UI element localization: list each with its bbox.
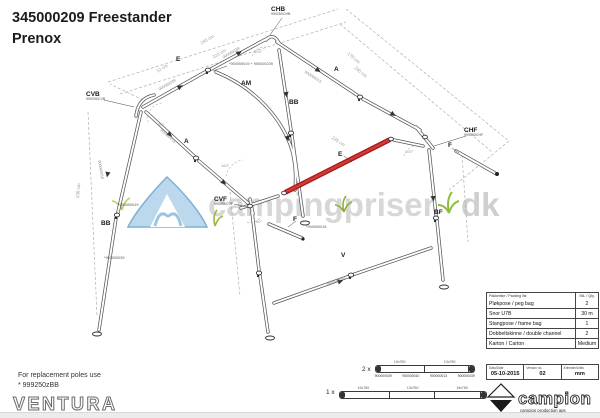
packing-table-row: Dobbeltskinne / double channel2 bbox=[487, 328, 598, 338]
campion-diamond-top bbox=[488, 384, 514, 397]
title-line-2: Prenox bbox=[12, 29, 172, 50]
packing-item-label: Snor U7B bbox=[487, 309, 575, 318]
spare-part-number: 900000039 bbox=[375, 374, 392, 378]
meta-cell: Enheder/Unitsmm bbox=[561, 365, 598, 379]
packing-table-row: Stangpose / frame bag1 bbox=[487, 318, 598, 328]
meta-cell: Version no.02 bbox=[523, 365, 560, 379]
packing-item-qty: 2 bbox=[575, 299, 598, 308]
assembly-arrows bbox=[104, 49, 436, 284]
ventura-logo-text: VENTURA bbox=[13, 394, 118, 414]
frame-diagram: campingpriser dk bbox=[0, 0, 600, 418]
note-line-1: For replacement poles use bbox=[18, 371, 101, 381]
meta-value: mm bbox=[575, 371, 585, 377]
spare-pole-row: 2 x19x75013x7509000000399000000109000000… bbox=[362, 360, 475, 378]
campion-logo-text: campion bbox=[518, 389, 591, 408]
spare-count: 1 x bbox=[326, 389, 335, 396]
watermark-text-1: campingpriser bbox=[208, 186, 436, 223]
spare-part-number: 900000010 bbox=[402, 374, 419, 378]
tent-icon bbox=[128, 177, 207, 227]
packing-item-qty: Medium bbox=[575, 339, 598, 348]
packing-meta-strip: Dato/Date05-10-2015Version no.02Enheder/… bbox=[486, 364, 599, 380]
meta-label: Enheder/Units bbox=[562, 366, 584, 370]
watermark-text-2: dk bbox=[461, 186, 500, 223]
packing-table-row: Snor U7B30 m bbox=[487, 308, 598, 318]
packing-item-qty: 30 m bbox=[575, 309, 598, 318]
spare-part-number: 900000039 bbox=[458, 374, 475, 378]
meta-cell: Dato/Date05-10-2015 bbox=[487, 365, 523, 379]
replacement-note: For replacement poles use * 999250zBB bbox=[18, 371, 101, 391]
feet bbox=[93, 221, 449, 340]
packing-list-table: Pakkeliste / Packing list Stk. / Qty. Pl… bbox=[486, 292, 599, 349]
red-pole bbox=[286, 140, 389, 192]
meta-value: 05-10-2015 bbox=[491, 371, 520, 377]
packing-item-label: Pløkpose / peg bag bbox=[487, 299, 575, 308]
sprout-icon bbox=[438, 192, 459, 213]
packing-item-label: Stangpose / frame bag bbox=[487, 319, 575, 328]
meta-label: Version no. bbox=[524, 366, 542, 370]
title-line-1: 345000209 Freestander bbox=[12, 8, 172, 29]
page-edge-band bbox=[0, 412, 600, 418]
packing-item-qty: 1 bbox=[575, 319, 598, 328]
spare-pole-row: 1 x19x75013x75019x750 bbox=[326, 386, 487, 399]
campion-logo: campion campion production aps bbox=[478, 380, 600, 416]
meta-value: 02 bbox=[539, 371, 545, 377]
spare-pole-drawing bbox=[375, 365, 475, 373]
packing-item-label: Karton / Carton bbox=[487, 339, 575, 348]
spare-count: 2 x bbox=[362, 366, 371, 373]
packing-item-qty: 2 bbox=[575, 329, 598, 338]
meta-label: Dato/Date bbox=[487, 366, 503, 370]
note-line-2: * 999250zBB bbox=[18, 381, 101, 391]
campion-diamond-bottom bbox=[490, 400, 512, 412]
catalog-page: campingpriser dk bbox=[0, 0, 600, 418]
packing-table-row: Karton / CartonMedium bbox=[487, 338, 598, 348]
spare-part-number: 900000013 bbox=[430, 374, 447, 378]
page-title: 345000209 Freestander Prenox bbox=[12, 8, 172, 50]
packing-item-label: Dobbeltskinne / double channel bbox=[487, 329, 575, 338]
spare-pole-drawing bbox=[339, 391, 487, 399]
packing-table-row: Pløkpose / peg bag2 bbox=[487, 299, 598, 308]
